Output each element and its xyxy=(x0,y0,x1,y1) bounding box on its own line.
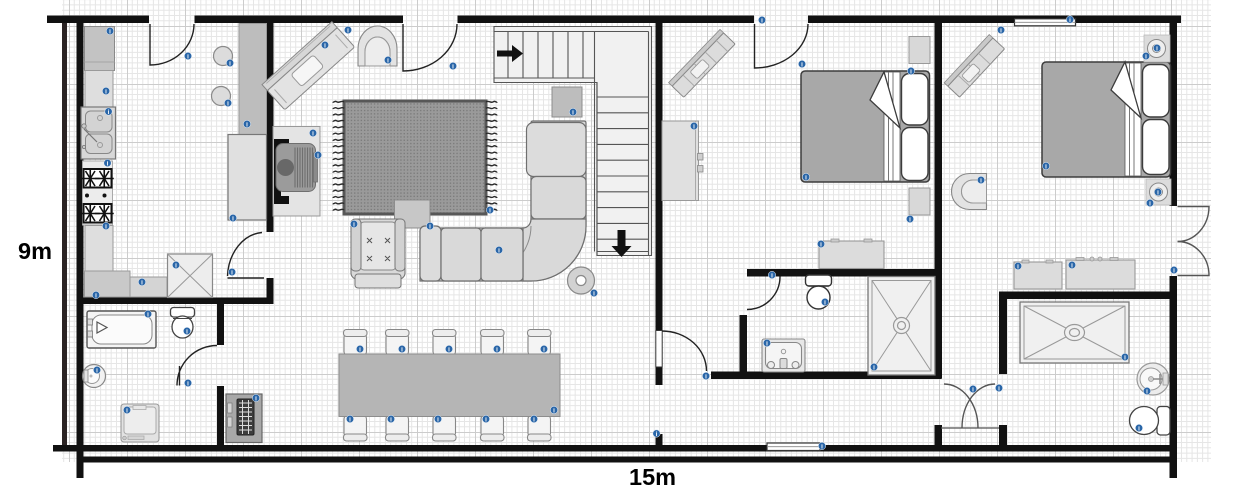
svg-text:15m: 15m xyxy=(629,464,676,490)
svg-text:9m: 9m xyxy=(18,238,52,264)
